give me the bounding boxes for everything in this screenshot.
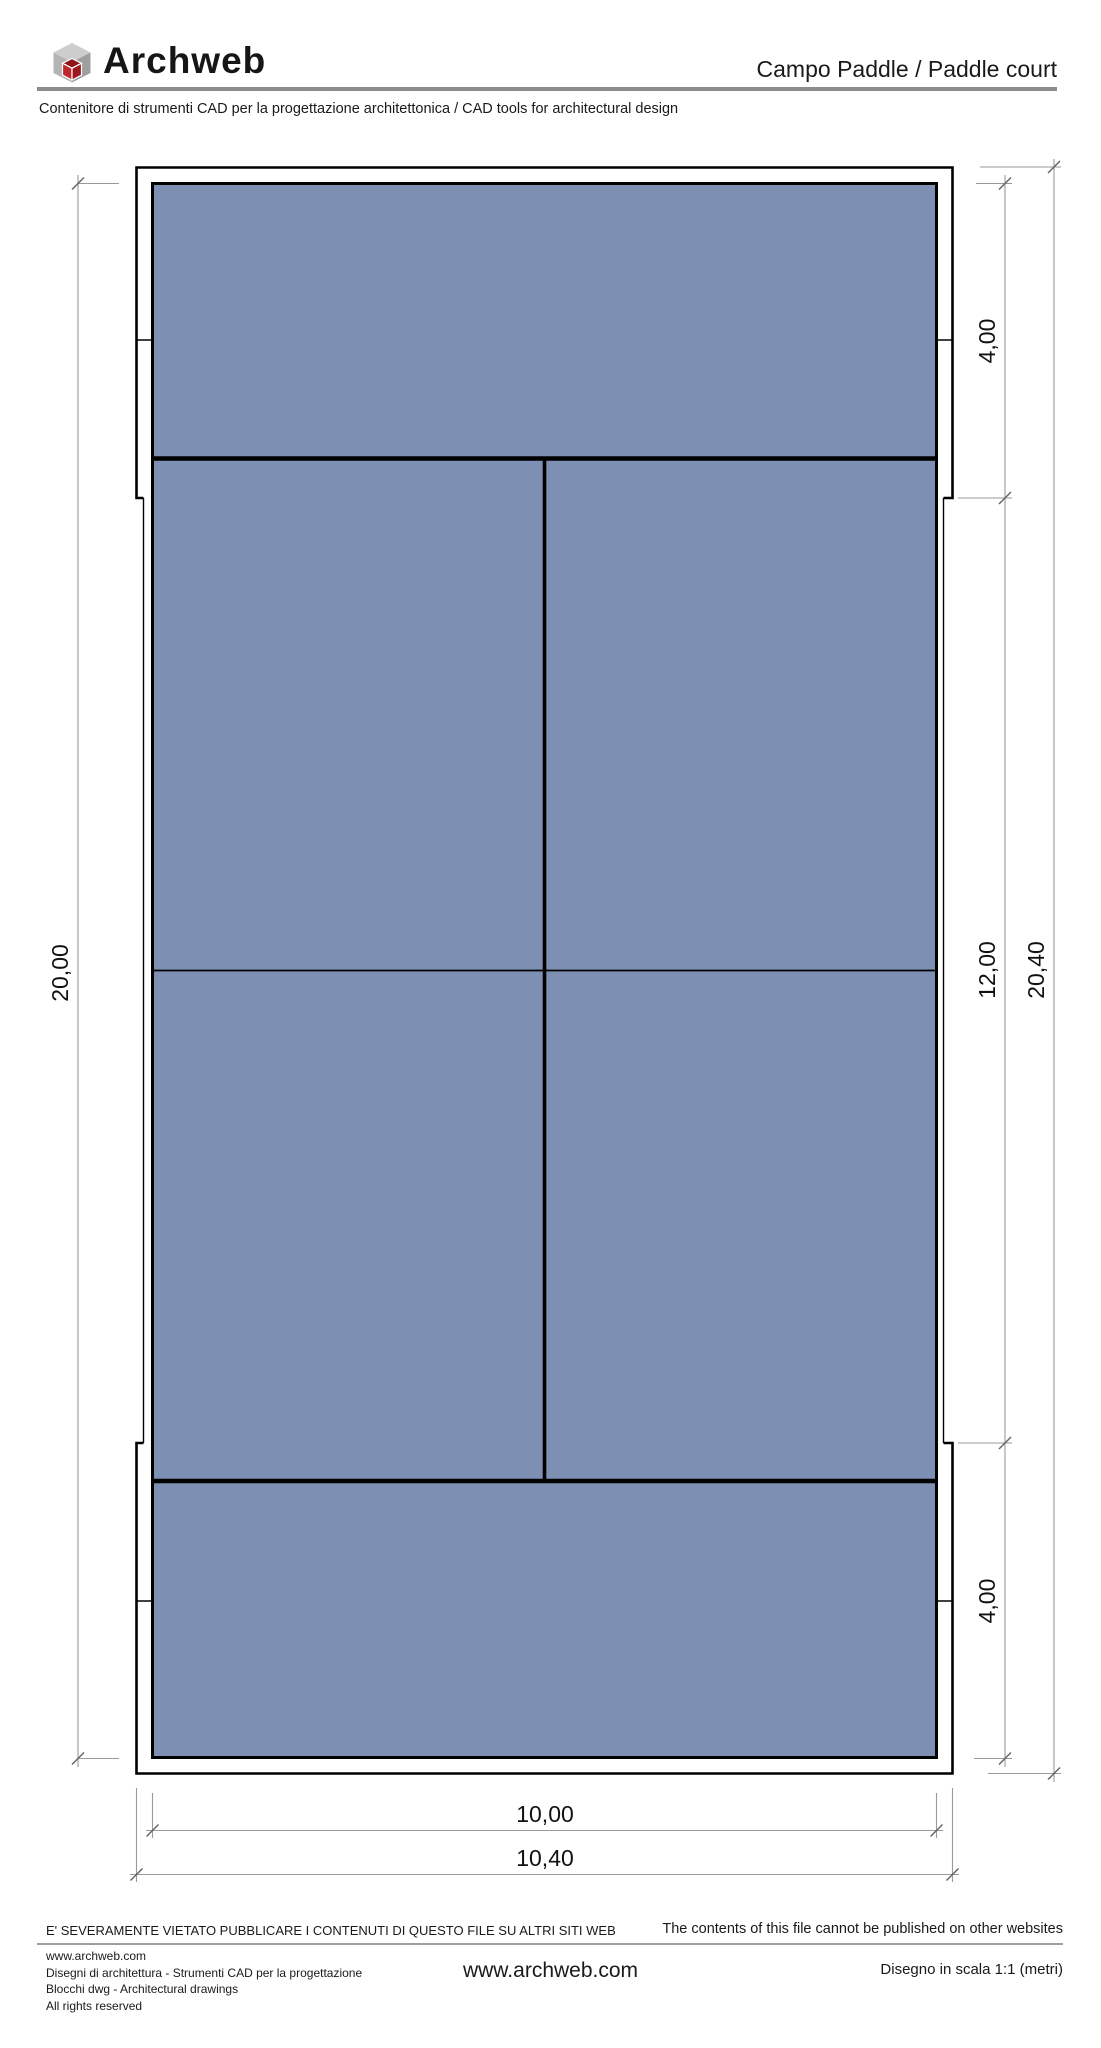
dim-panel-top: 4,00 (974, 319, 1000, 364)
footer-rule (37, 1943, 1063, 1945)
dim-panel-bottom: 4,00 (974, 1579, 1000, 1624)
dim-overall-width: 10,40 (516, 1845, 574, 1871)
dim-court-length: 20,00 (47, 944, 73, 1002)
dim-court-width: 10,00 (516, 1801, 574, 1827)
footer-notice-english: The contents of this file cannot be publ… (662, 1921, 1063, 1937)
footer-info-line: All rights reserved (46, 1998, 362, 2015)
scale-note: Disegno in scala 1:1 (metri) (880, 1961, 1063, 1978)
footer-notice-italian: E' SEVERAMENTE VIETATO PUBBLICARE I CONT… (46, 1923, 616, 1938)
court-plan-svg: 20,00 4,00 12,00 4,00 20,40 10,00 10,40 (0, 0, 1101, 2048)
dim-panel-middle: 12,00 (974, 941, 1000, 999)
footer-info-line: Blocchi dwg - Architectural drawings (46, 1981, 362, 1998)
dim-overall-length: 20,40 (1023, 941, 1049, 999)
